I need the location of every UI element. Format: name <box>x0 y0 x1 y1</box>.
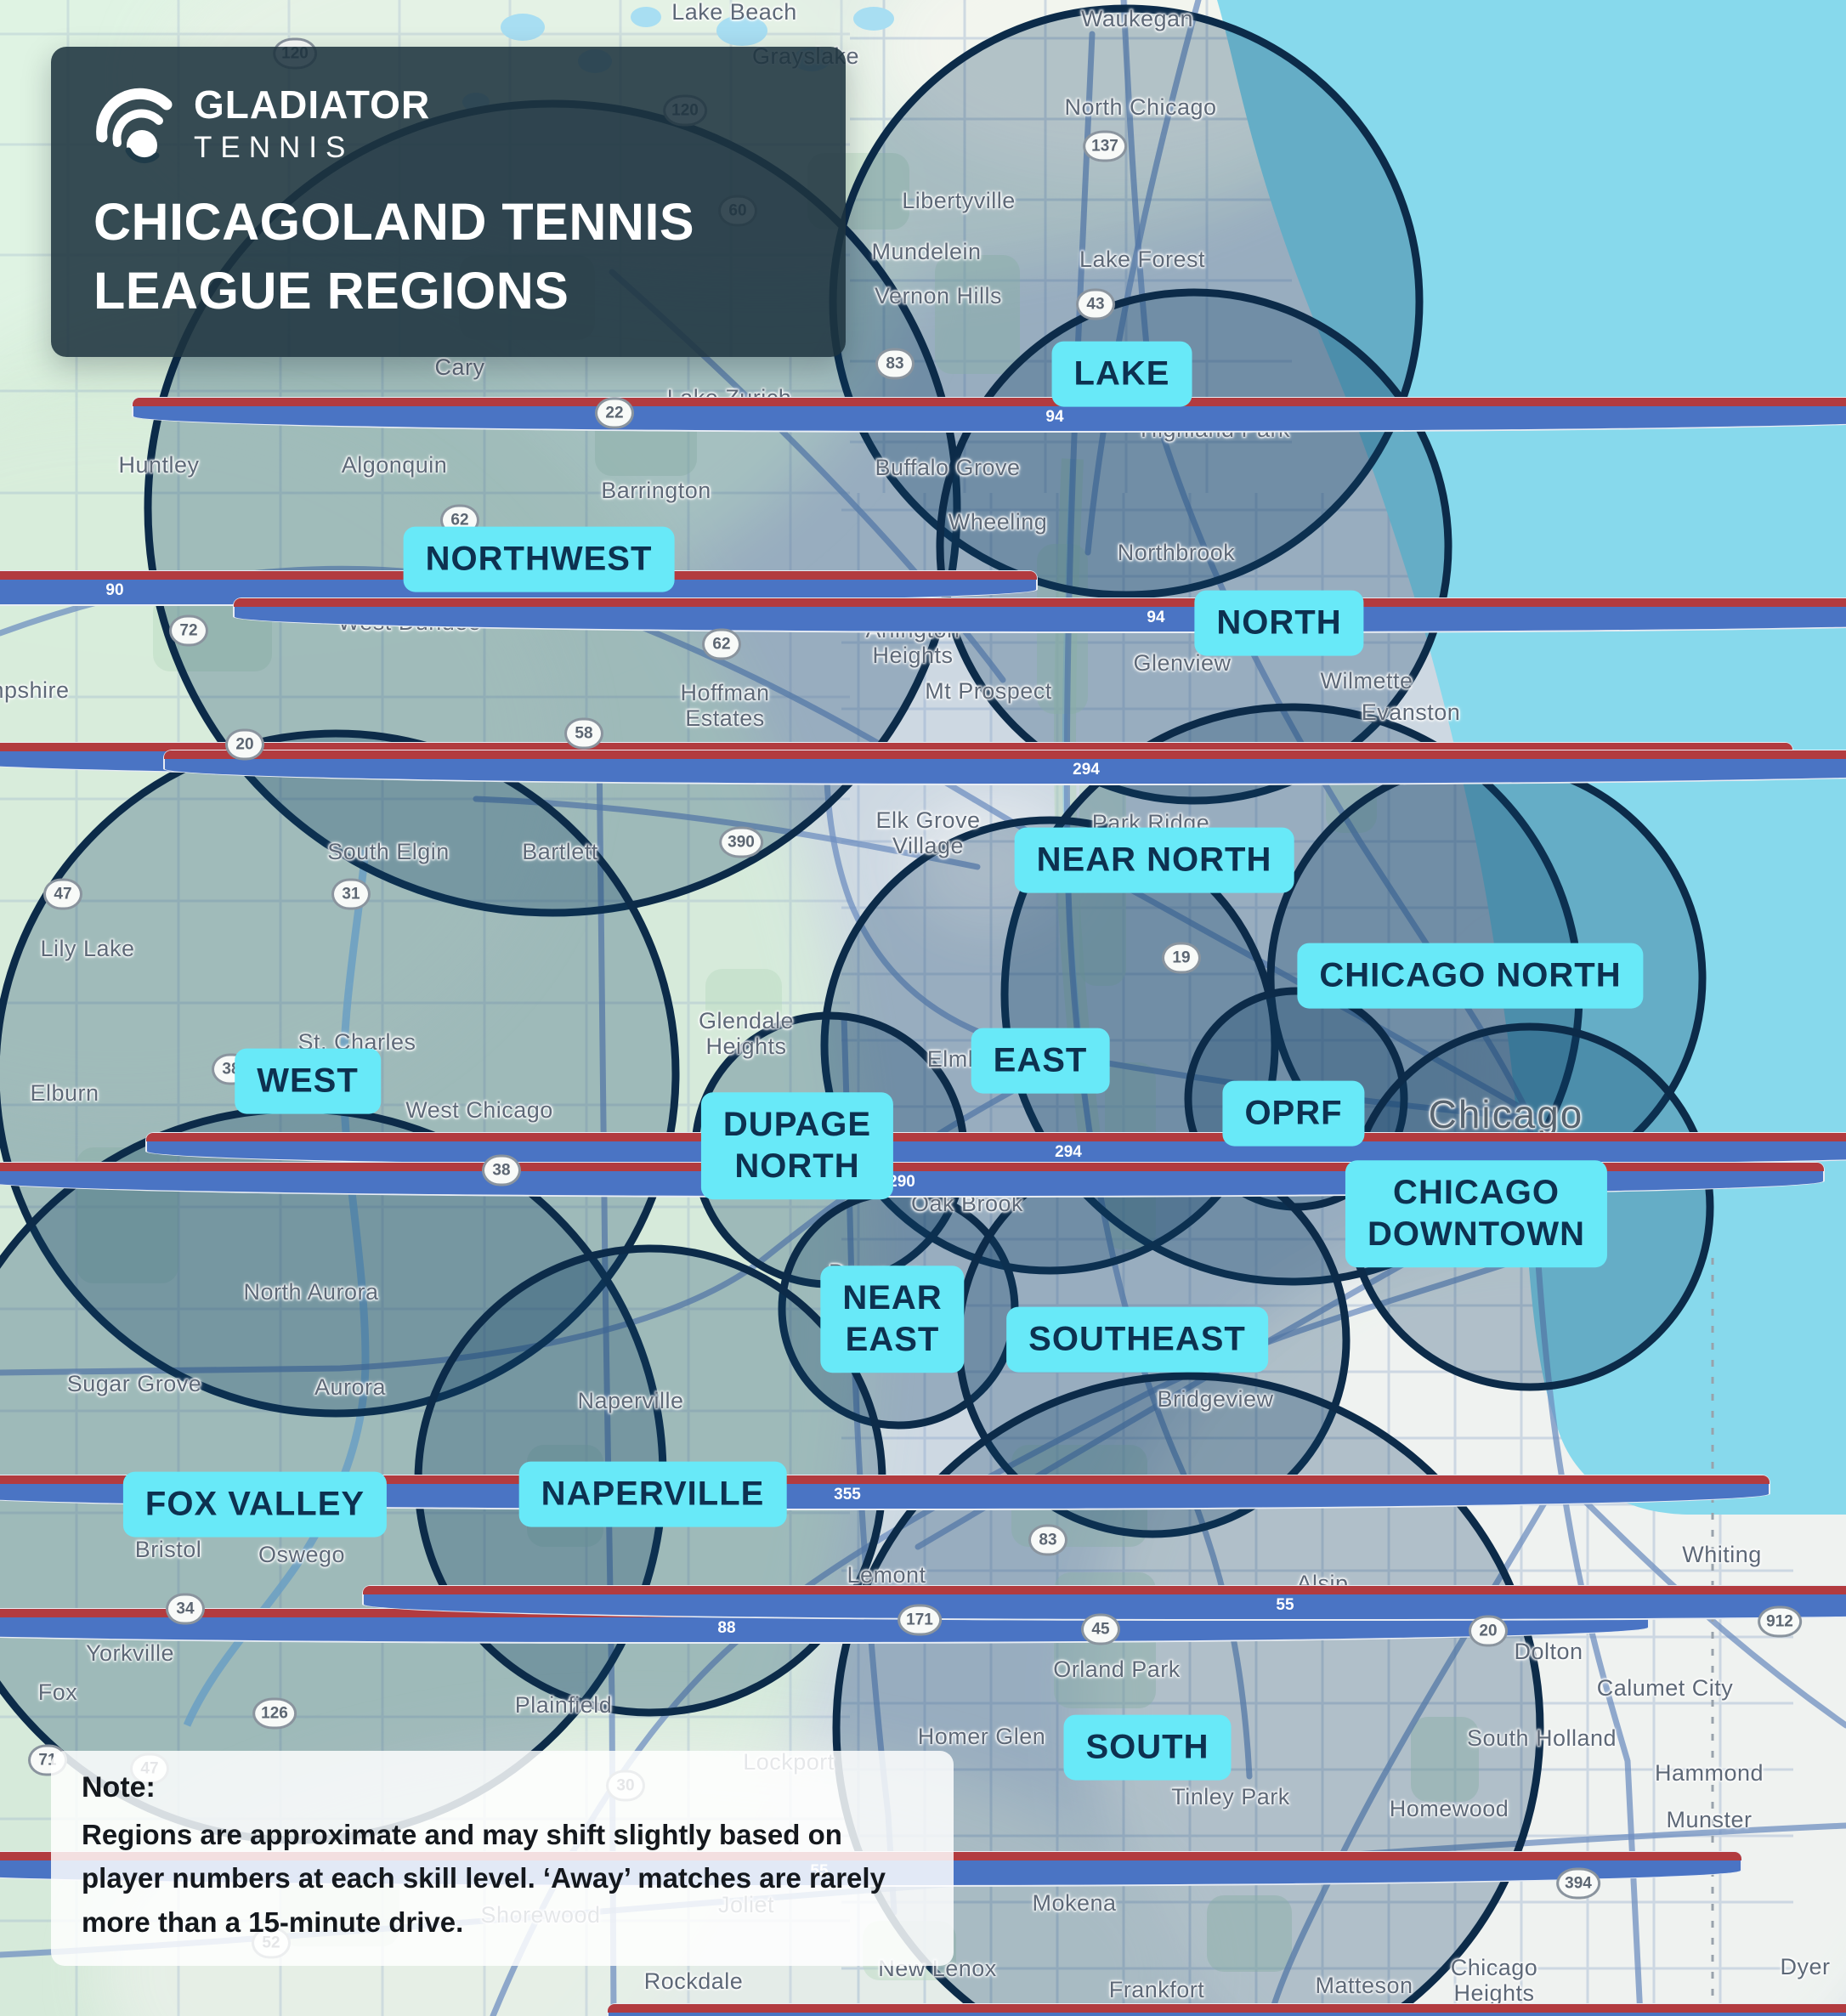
city-label-mt-prospect: Mt Prospect <box>925 678 1052 704</box>
interstate-shield-94: 94 <box>233 597 1846 633</box>
route-shield-38: 38 <box>482 1155 521 1186</box>
route-shield-912: 912 <box>1758 1606 1802 1638</box>
city-label-homer-glen: Homer Glen <box>918 1724 1046 1749</box>
city-label-mokena: Mokena <box>1032 1890 1116 1916</box>
route-shield-20: 20 <box>225 729 264 761</box>
city-label-lake-forest: Lake Forest <box>1079 246 1205 272</box>
city-label-glendale-heights: Glendale Heights <box>699 1008 794 1059</box>
region-label-chicago-north: CHICAGO NORTH <box>1297 943 1643 1009</box>
route-shield-390: 390 <box>719 827 763 858</box>
city-label-northbrook: Northbrook <box>1118 540 1236 565</box>
city-label-dyer: Dyer <box>1780 1954 1830 1979</box>
city-label-chicago: Chicago <box>1429 1093 1584 1137</box>
city-label-yorkville: Yorkville <box>86 1640 174 1666</box>
region-label-northwest: NORTHWEST <box>404 527 675 592</box>
city-label-elk-grove-village: Elk Grove Village <box>875 807 980 858</box>
city-label-rockdale: Rockdale <box>644 1968 744 1994</box>
city-label-matteson: Matteson <box>1315 1973 1413 1998</box>
map-poster: Lake BeachWaukeganGrayslakeNorth Chicago… <box>0 0 1846 2016</box>
city-label-south-elgin: South Elgin <box>327 839 450 864</box>
route-shield-83: 83 <box>1028 1525 1067 1556</box>
city-label-homewood: Homewood <box>1390 1796 1509 1821</box>
route-shield-45: 45 <box>1081 1614 1120 1645</box>
city-label-north-aurora: North Aurora <box>243 1279 378 1305</box>
city-label-waukegan: Waukegan <box>1081 6 1193 31</box>
city-label-evanston: Evanston <box>1362 699 1461 725</box>
city-label-mundelein: Mundelein <box>871 239 981 264</box>
route-shield-22: 22 <box>595 398 634 429</box>
city-label-north-chicago: North Chicago <box>1064 94 1216 120</box>
city-label-vernon-hills: Vernon Hills <box>875 283 1002 309</box>
brand-block: GLADIATOR TENNIS <box>194 82 430 165</box>
page-title: CHICAGOLAND TENNIS LEAGUE REGIONS <box>93 188 694 326</box>
route-shield-20: 20 <box>1469 1616 1508 1647</box>
route-shield-47: 47 <box>43 879 82 910</box>
city-label-lily-lake: Lily Lake <box>40 936 134 961</box>
city-label-fox: Fox <box>38 1679 78 1705</box>
route-shield-19: 19 <box>1162 943 1201 974</box>
region-label-naperville: NAPERVILLE <box>519 1462 787 1527</box>
route-shield-126: 126 <box>252 1698 297 1730</box>
city-label-cary: Cary <box>434 354 484 380</box>
city-label-huntley: Huntley <box>118 452 199 478</box>
region-label-fox-valley: FOX VALLEY <box>123 1472 387 1537</box>
city-label-aurora: Aurora <box>314 1374 386 1400</box>
region-label-north: NORTH <box>1194 591 1363 656</box>
city-label-tinley-park: Tinley Park <box>1171 1784 1290 1809</box>
city-label-dolton: Dolton <box>1514 1639 1583 1664</box>
city-label-west-chicago: West Chicago <box>405 1097 553 1123</box>
city-label-algonquin: Algonquin <box>342 452 448 478</box>
route-shield-43: 43 <box>1076 289 1115 320</box>
city-label-hampshire: Hampshire <box>0 677 70 703</box>
city-label-lake-beach: Lake Beach <box>671 0 797 25</box>
route-shield-171: 171 <box>898 1605 942 1636</box>
city-label-hammond: Hammond <box>1655 1760 1764 1786</box>
city-label-buffalo-grove: Buffalo Grove <box>875 455 1020 480</box>
city-label-hoffman-estates: Hoffman Estates <box>680 680 769 731</box>
interstate-shield-94: 94 <box>607 2003 1846 2016</box>
city-label-libertyville: Libertyville <box>902 188 1016 213</box>
city-label-south-holland: South Holland <box>1467 1725 1617 1751</box>
route-shield-34: 34 <box>166 1594 205 1625</box>
route-shield-31: 31 <box>331 879 371 910</box>
city-label-wilmette: Wilmette <box>1320 668 1413 694</box>
city-label-elburn: Elburn <box>30 1080 99 1106</box>
city-label-plainfield: Plainfield <box>515 1692 613 1718</box>
region-label-near-east: NEAR EAST <box>820 1266 964 1373</box>
header-card: GLADIATOR TENNIS CHICAGOLAND TENNIS LEAG… <box>51 47 846 357</box>
note-heading: Note: <box>82 1771 923 1804</box>
region-label-south: SOUTH <box>1064 1715 1232 1781</box>
city-label-oswego: Oswego <box>258 1542 345 1567</box>
city-label-naperville: Naperville <box>577 1388 683 1413</box>
region-label-southeast: SOUTHEAST <box>1006 1307 1268 1373</box>
route-shield-137: 137 <box>1083 131 1127 162</box>
route-shield-62: 62 <box>702 629 741 660</box>
city-label-orland-park: Orland Park <box>1053 1656 1181 1682</box>
interstate-shield-94: 94 <box>132 397 1846 433</box>
city-label-barrington: Barrington <box>601 478 711 503</box>
region-label-dupage-north: DUPAGE NORTH <box>701 1092 893 1199</box>
route-shield-72: 72 <box>169 615 208 647</box>
route-shield-83: 83 <box>875 348 915 380</box>
region-label-lake: LAKE <box>1052 342 1192 407</box>
city-label-bartlett: Bartlett <box>522 839 598 864</box>
city-label-bristol: Bristol <box>135 1537 202 1562</box>
note-card: Note: Regions are approximate and may sh… <box>51 1751 954 1966</box>
note-body: Regions are approximate and may shift sl… <box>82 1813 931 1944</box>
region-label-west: WEST <box>235 1049 381 1114</box>
city-label-munster: Munster <box>1666 1807 1752 1832</box>
gladiator-logo-icon <box>92 81 177 166</box>
city-label-whiting: Whiting <box>1682 1542 1762 1567</box>
brand-name: GLADIATOR <box>194 82 430 127</box>
logo-row: GLADIATOR TENNIS <box>92 81 430 166</box>
title-line-1: CHICAGOLAND TENNIS <box>93 188 694 258</box>
city-label-lemont: Lemont <box>847 1562 926 1588</box>
city-label-calumet-city: Calumet City <box>1597 1675 1734 1701</box>
region-label-east: EAST <box>971 1028 1110 1094</box>
city-label-wheeling: Wheeling <box>948 509 1048 535</box>
city-label-bridgeview: Bridgeview <box>1157 1386 1273 1412</box>
city-label-chicago-heights: Chicago Heights <box>1451 1955 1538 2006</box>
brand-subname: TENNIS <box>194 131 430 165</box>
city-label-sugar-grove: Sugar Grove <box>67 1371 202 1396</box>
city-label-frankfort: Frankfort <box>1109 1977 1205 2002</box>
region-label-chicago-downtown: CHICAGO DOWNTOWN <box>1345 1160 1607 1267</box>
region-label-near-north: NEAR NORTH <box>1015 828 1294 893</box>
route-shield-58: 58 <box>564 718 603 750</box>
interstate-shield-294: 294 <box>163 750 1846 785</box>
region-label-oprf: OPRF <box>1222 1081 1364 1147</box>
route-shield-394: 394 <box>1556 1868 1600 1900</box>
title-line-2: LEAGUE REGIONS <box>93 257 694 326</box>
